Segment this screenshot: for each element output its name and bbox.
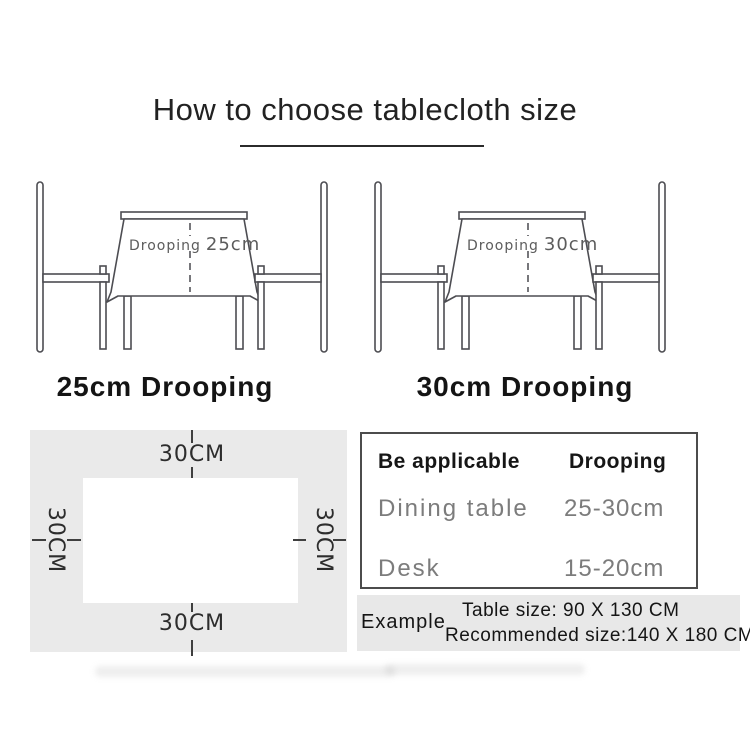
table-leg xyxy=(462,296,469,349)
tick-right-inner xyxy=(293,539,306,541)
chair-back xyxy=(659,182,665,352)
table-leg xyxy=(236,296,243,349)
drooping-word: Drooping xyxy=(129,238,201,254)
caption-25cm-drooping: 25cm Drooping xyxy=(40,371,290,403)
illustration-30cm: Drooping30cm xyxy=(375,182,665,352)
table: Drooping30cm xyxy=(445,212,599,349)
chair-left xyxy=(375,182,447,352)
row-name: Desk xyxy=(378,555,441,583)
drooping-label: Drooping25cm xyxy=(129,234,260,255)
chair-back xyxy=(375,182,381,352)
dim-bottom: 30CM xyxy=(152,612,232,636)
dim-left: 30CM xyxy=(43,500,67,580)
chair-right xyxy=(255,182,327,352)
illustration-25cm: Drooping25cm xyxy=(37,182,327,352)
watermark-smudge xyxy=(385,664,585,675)
drooping-value: 25cm xyxy=(206,234,260,255)
tablecloth-size-infographic: How to choose tablecloth size Drooping25… xyxy=(0,0,750,750)
watermark-smudge xyxy=(95,666,395,677)
chair-seat-edge xyxy=(258,266,264,274)
table-leg xyxy=(124,296,131,349)
drooping-label: Drooping30cm xyxy=(467,234,598,255)
chair-seat-edge xyxy=(596,266,602,274)
tablecloth xyxy=(107,219,261,302)
table-top xyxy=(459,212,585,219)
drooping-value: 30cm xyxy=(544,234,598,255)
drooping-word: Drooping xyxy=(467,238,539,254)
spec-table: Be applicable Drooping Dining table 25-3… xyxy=(360,432,698,589)
page-title: How to choose tablecloth size xyxy=(0,92,730,128)
table-surface xyxy=(83,478,298,603)
chair-leg xyxy=(100,282,106,349)
dim-top: 30CM xyxy=(152,443,232,467)
tick-right-outer xyxy=(333,539,346,541)
spec-header-applicable: Be applicable xyxy=(378,450,520,474)
example-panel: Example Table size: 90 X 130 CM Recommen… xyxy=(357,595,740,651)
table-leg xyxy=(574,296,581,349)
example-table-size: Table size: 90 X 130 CM xyxy=(462,600,679,622)
tablecloth xyxy=(445,219,599,302)
row-name: Dining table xyxy=(378,495,529,523)
tables-illustration: Drooping25cm xyxy=(0,170,750,370)
chair-left xyxy=(37,182,109,352)
chair-right xyxy=(593,182,665,352)
tick-left-inner xyxy=(67,539,81,541)
table-top xyxy=(121,212,247,219)
example-recommended-size: Recommended size:140 X 180 CM xyxy=(445,625,750,647)
row-value: 15-20cm xyxy=(564,555,664,583)
chair-seat-edge xyxy=(100,266,106,274)
chair-seat-edge xyxy=(438,266,444,274)
chair-seat xyxy=(593,274,659,282)
chair-leg xyxy=(596,282,602,349)
chair-leg xyxy=(438,282,444,349)
chair-seat xyxy=(381,274,447,282)
table: Drooping25cm xyxy=(107,212,261,349)
dim-right: 30CM xyxy=(311,500,335,580)
tick-top-inner xyxy=(191,467,193,478)
caption-30cm-drooping: 30cm Drooping xyxy=(400,371,650,403)
chair-seat xyxy=(43,274,109,282)
chair-back xyxy=(37,182,43,352)
tick-bottom-outer xyxy=(191,640,193,656)
chair-seat xyxy=(255,274,321,282)
chair-leg xyxy=(258,282,264,349)
row-value: 25-30cm xyxy=(564,495,664,523)
title-underline xyxy=(240,145,484,147)
spec-header-drooping: Drooping xyxy=(569,450,666,474)
chair-back xyxy=(321,182,327,352)
size-diagram: 30CM 30CM 30CM 30CM xyxy=(30,430,347,652)
example-label: Example xyxy=(361,611,446,634)
